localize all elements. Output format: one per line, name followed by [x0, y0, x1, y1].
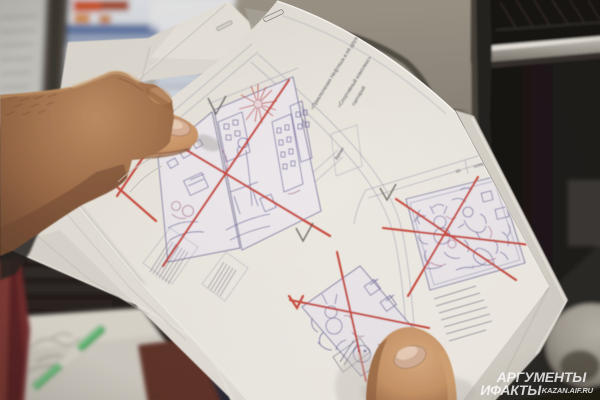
svg-text:KAZAN.AIF.RU: KAZAN.AIF.RU: [542, 386, 594, 395]
svg-text:ИФАКТЫ: ИФАКТЫ: [480, 382, 542, 398]
